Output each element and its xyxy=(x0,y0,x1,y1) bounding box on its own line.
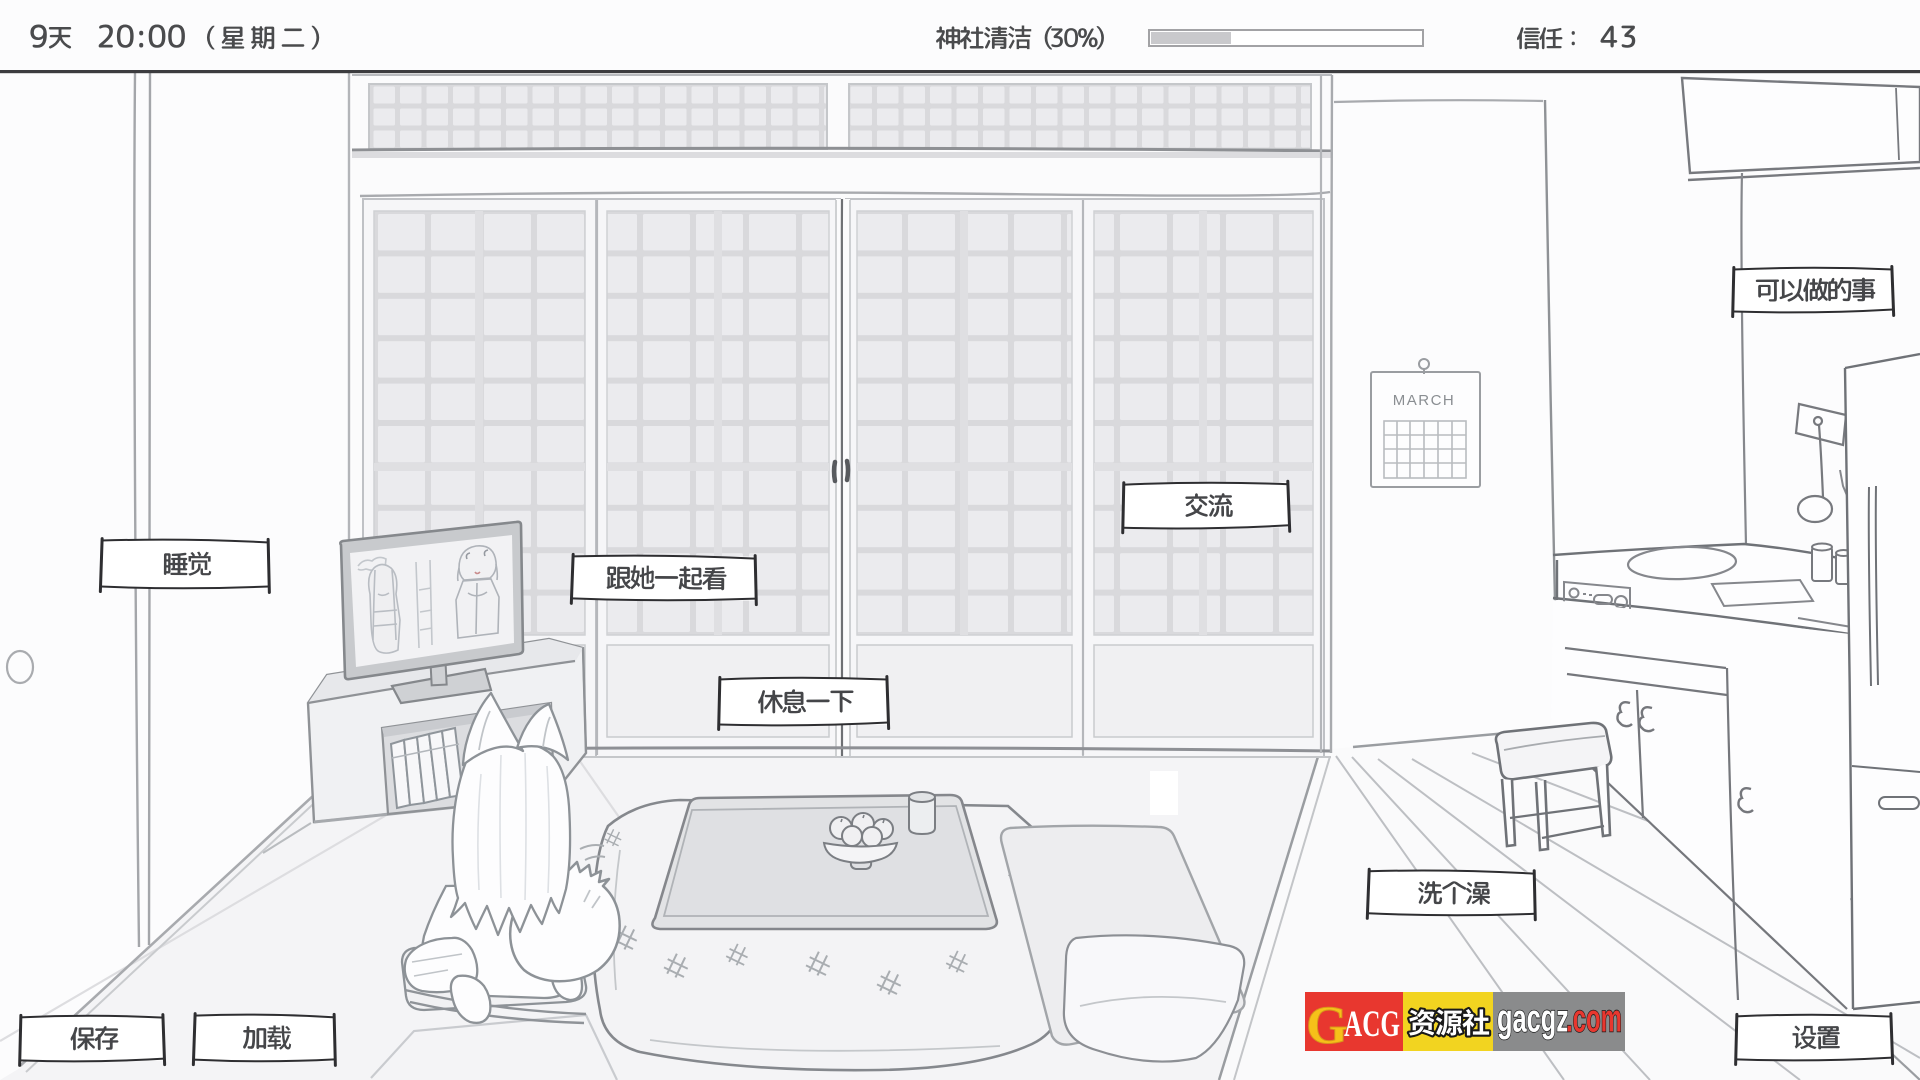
svg-text:MARCH: MARCH xyxy=(1393,392,1456,409)
svg-text:.com: .com xyxy=(1566,996,1622,1040)
svg-text:G: G xyxy=(1306,995,1348,1055)
svg-text:ACG: ACG xyxy=(1344,1004,1400,1045)
svg-text:gacgz: gacgz xyxy=(1497,996,1569,1040)
